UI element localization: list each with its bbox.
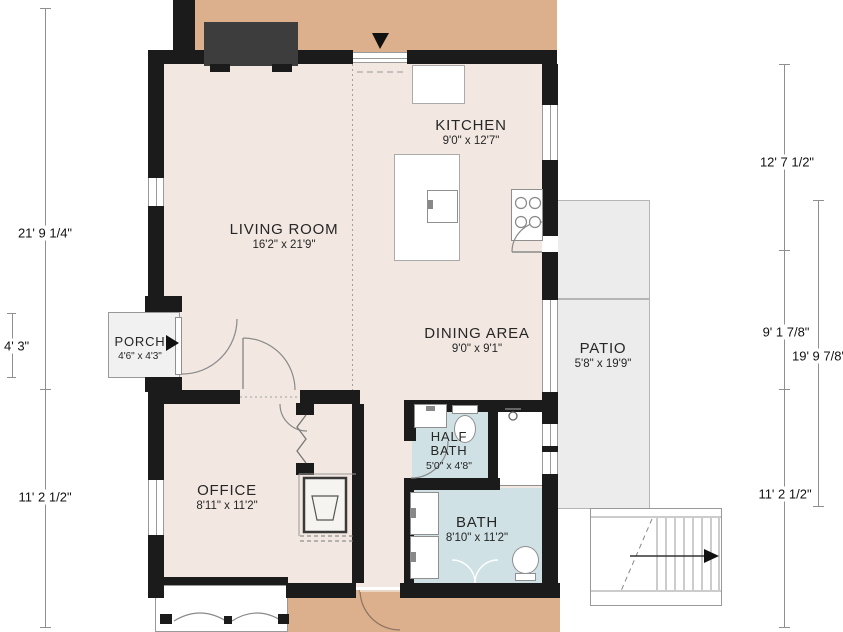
faucet-icon: [426, 406, 435, 411]
dimension-line: [784, 390, 785, 628]
living-room-label: LIVING ROOM 16'2" x 21'9": [230, 222, 339, 251]
faucet-icon: [411, 508, 416, 518]
half-bath-name: HALF BATH: [416, 430, 482, 458]
dimension-tick: [40, 389, 51, 390]
dim-right-lower: 11' 2 1/2": [755, 487, 814, 502]
patio-label: PATIO 5'8" x 19'9": [575, 341, 632, 370]
floor-plan-canvas: KITCHEN 9'0" x 12'7" LIVING ROOM 16'2" x…: [0, 0, 843, 632]
burner-icon: [530, 198, 541, 209]
dim-right-kitchen: 12' 7 1/2": [757, 155, 817, 170]
porch-door-arc: [182, 319, 237, 374]
dimension-tick: [813, 506, 824, 507]
dimension-line: [45, 390, 46, 628]
faucet-icon: [411, 552, 416, 562]
bath-dims: 8'10" x 11'2": [446, 532, 508, 544]
dim-right-dining: 9' 1 7/8": [760, 325, 813, 340]
office-name: OFFICE: [196, 483, 257, 498]
dimension-tick: [779, 250, 790, 251]
dimension-tick: [7, 377, 16, 378]
office-dims: 8'11" x 11'2": [196, 500, 257, 512]
dim-right-patio: 19' 9 7/8": [789, 349, 843, 364]
faucet-icon: [428, 200, 433, 209]
bay-mullion: [278, 614, 289, 624]
dim-porch-height: 4' 3": [1, 339, 32, 354]
burner-icon: [530, 217, 541, 228]
dimension-tick: [779, 389, 790, 390]
porch-name: PORCH: [115, 334, 166, 349]
patio-name: PATIO: [575, 341, 632, 356]
kitchen-dims: 9'0" x 12'7": [435, 135, 506, 147]
dimension-tick: [7, 313, 16, 314]
bay-mullion: [160, 614, 172, 624]
casement-window-arc: [174, 613, 226, 621]
dimension-tick: [40, 8, 51, 9]
bath-door-arc: [475, 560, 498, 583]
deck-door-arc: [360, 590, 400, 630]
shower-head-icon: [509, 412, 517, 420]
bath-door-arc: [452, 560, 475, 583]
porch-dims: 4'6" x 4'3": [115, 351, 166, 363]
dimension-tick: [40, 627, 51, 628]
dimension-tick: [779, 64, 790, 65]
office-door-arc: [243, 338, 295, 390]
dimension-tick: [779, 627, 790, 628]
kitchen-name: KITCHEN: [435, 118, 506, 133]
casement-window-arc: [232, 613, 282, 621]
bifold-closet-doors: [297, 415, 306, 463]
porch-entry-arrow-icon: [166, 335, 179, 351]
bath-name: BATH: [446, 515, 508, 530]
detail-overlay: [0, 0, 843, 632]
washer: [304, 478, 346, 532]
bay-mullion: [224, 616, 232, 624]
dimension-line: [784, 250, 785, 390]
dimension-tick: [813, 200, 824, 201]
kitchen-label: KITCHEN 9'0" x 12'7": [435, 118, 506, 147]
dining-area-label: DINING AREA 9'0" x 9'1": [424, 326, 530, 355]
closet-door-arc: [280, 404, 307, 431]
half-bath-label: HALF BATH 5'0" x 4'8": [416, 430, 482, 472]
bath-label: BATH 8'10" x 11'2": [446, 515, 508, 544]
living-room-name: LIVING ROOM: [230, 222, 339, 237]
half-bath-dims: 5'0" x 4'8": [416, 460, 482, 472]
entry-arrow-icon: [372, 33, 389, 49]
dimension-line: [45, 8, 46, 390]
dining-area-dims: 9'0" x 9'1": [424, 343, 530, 355]
patio-dims: 5'8" x 19'9": [575, 358, 632, 370]
office-label: OFFICE 8'11" x 11'2": [196, 483, 257, 512]
dim-left-total: 21' 9 1/4": [15, 226, 75, 241]
burner-icon: [516, 217, 527, 228]
dining-area-name: DINING AREA: [424, 326, 530, 341]
porch-label: PORCH 4'6" x 4'3": [115, 334, 166, 363]
burner-icon: [516, 198, 527, 209]
dim-left-lower: 11' 2 1/2": [15, 490, 74, 505]
stair-break-dashed: [621, 519, 652, 591]
living-room-dims: 16'2" x 21'9": [230, 239, 339, 251]
